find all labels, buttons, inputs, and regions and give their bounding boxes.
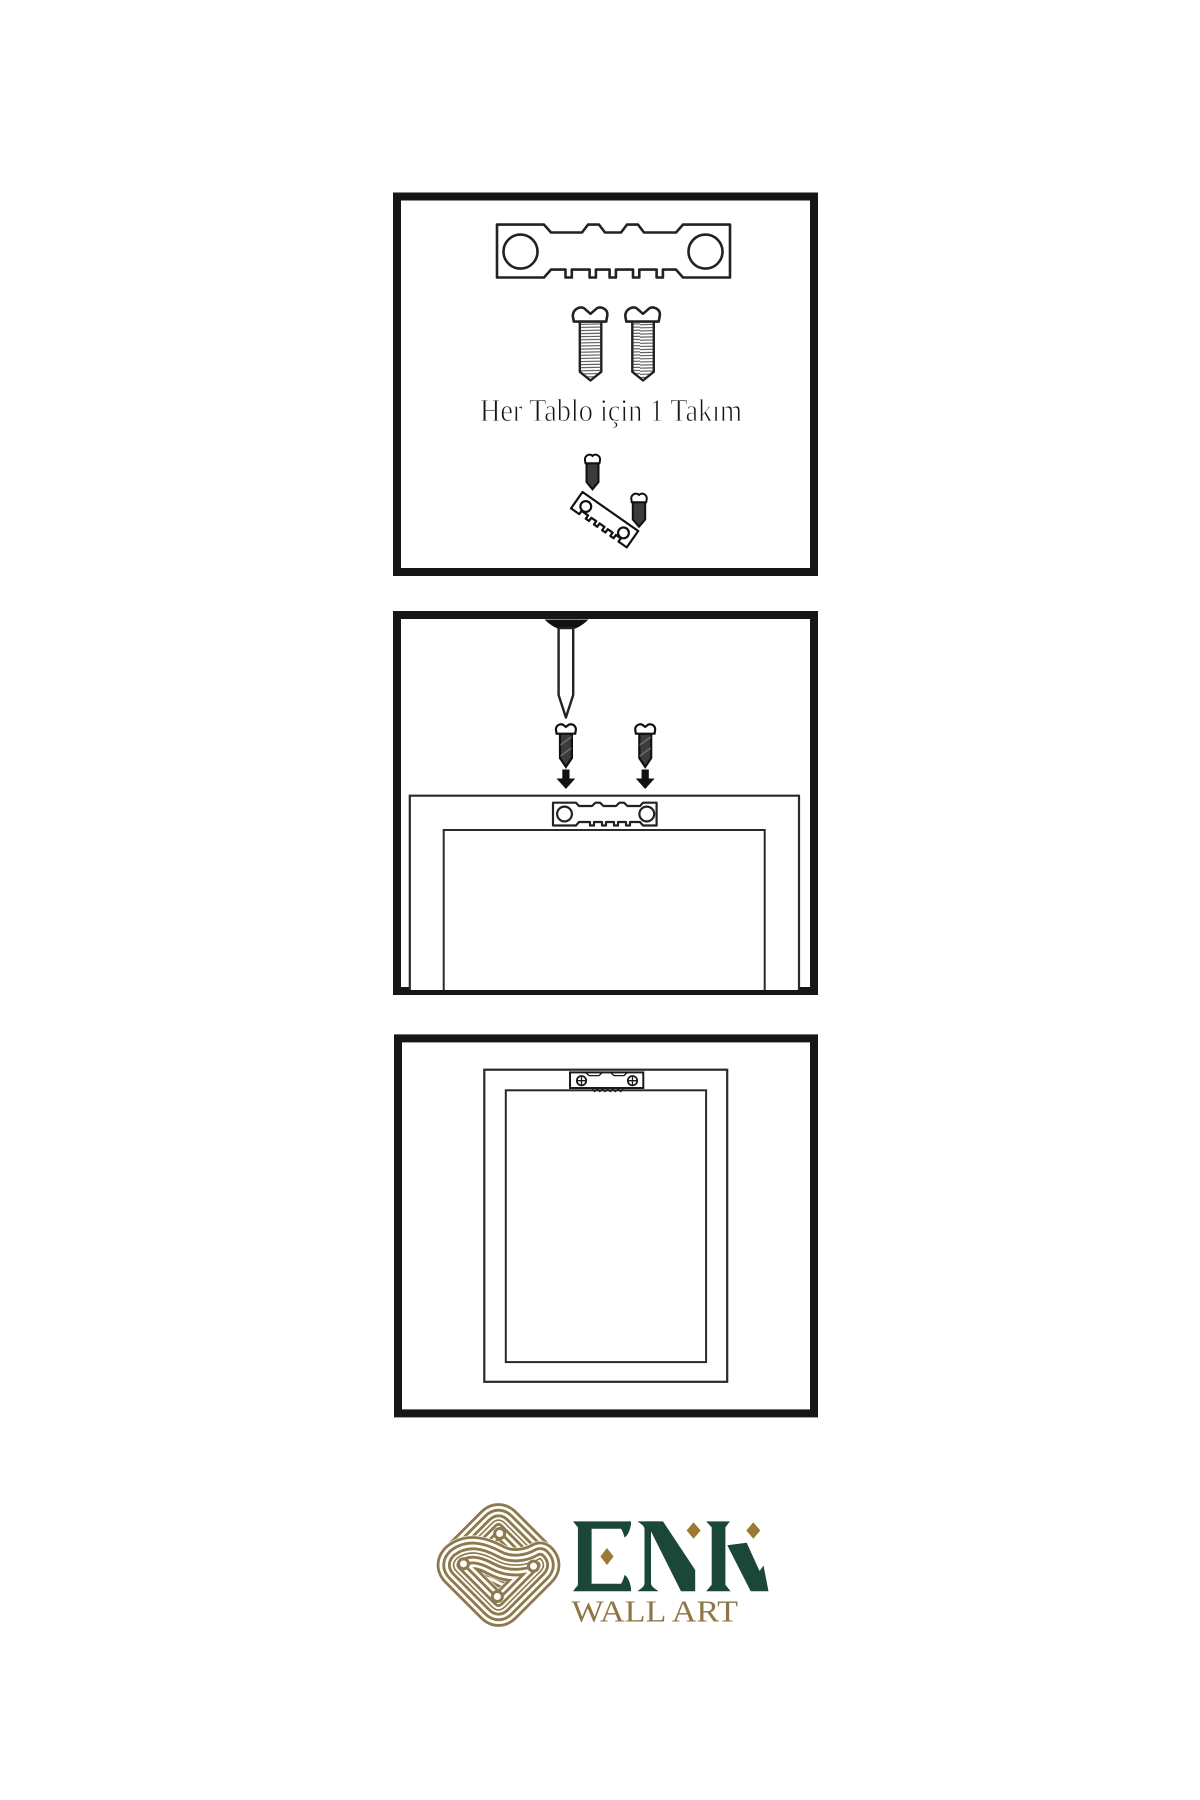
svg-text:Her Tablo için 1 Takım: Her Tablo için 1 Takım: [480, 392, 742, 428]
svg-text:WALL ART: WALL ART: [572, 1593, 739, 1628]
